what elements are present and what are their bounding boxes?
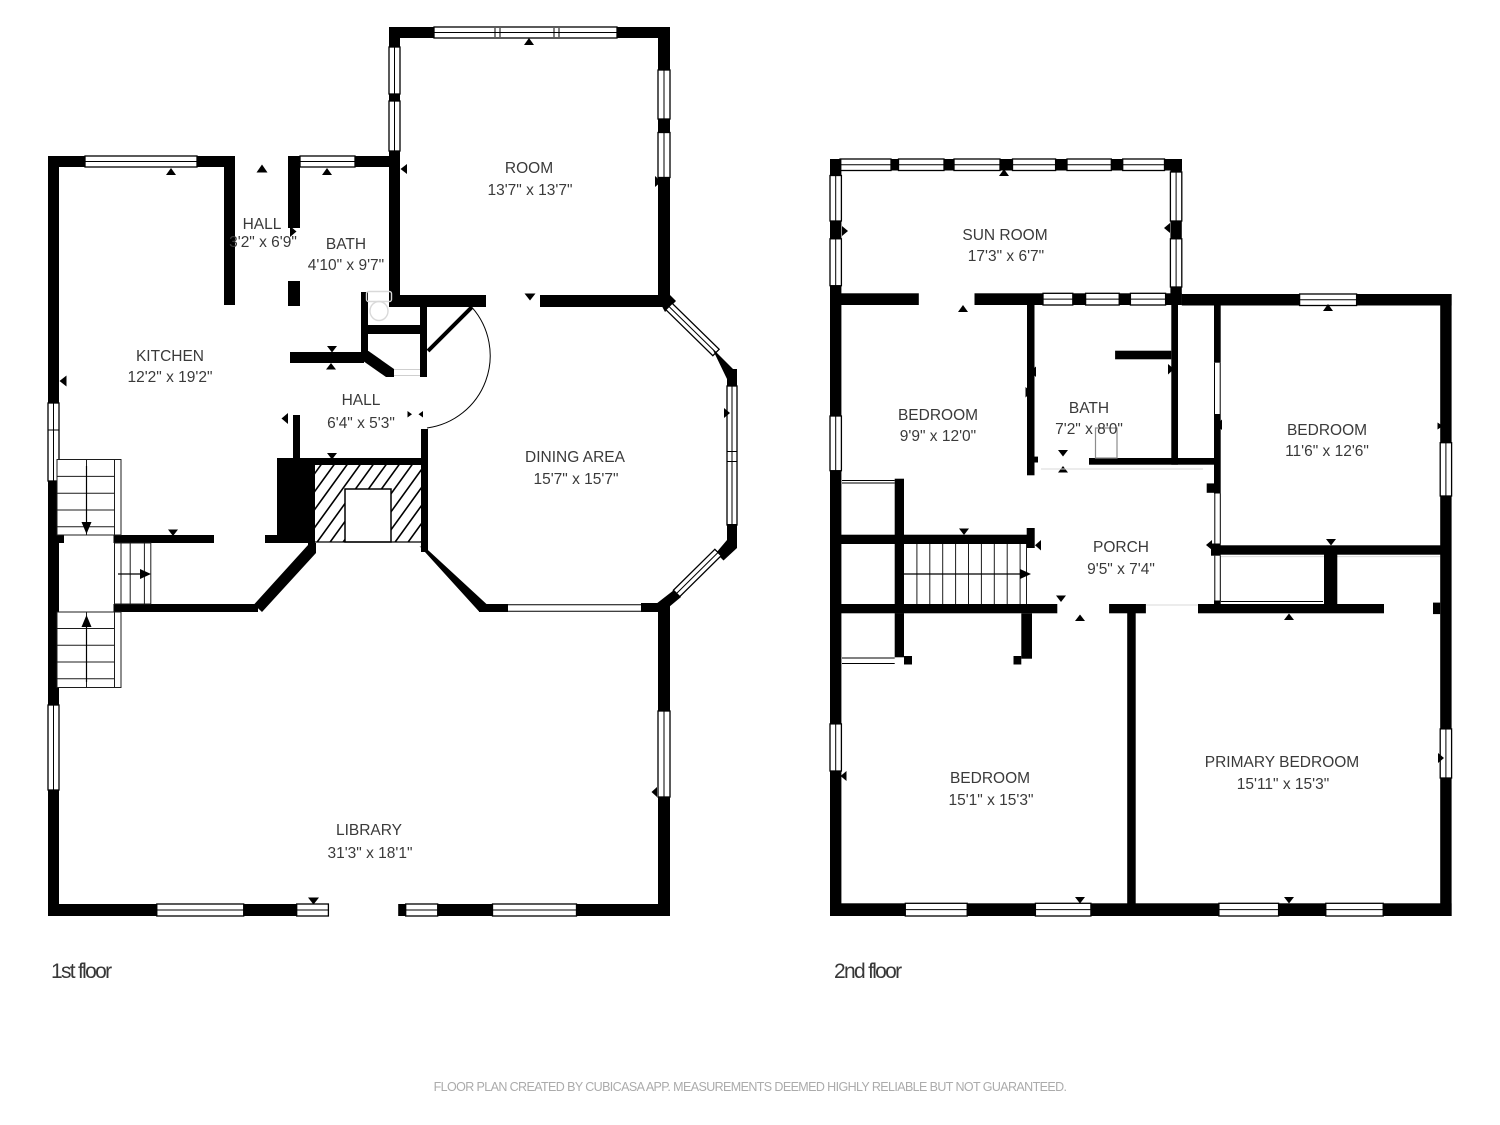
svg-text:13'7" x 13'7": 13'7" x 13'7" xyxy=(487,182,572,199)
svg-text:1st floor: 1st floor xyxy=(51,960,112,983)
svg-text:2nd floor: 2nd floor xyxy=(834,960,902,983)
svg-text:BATH: BATH xyxy=(326,236,366,253)
svg-text:BATH: BATH xyxy=(1069,400,1109,417)
svg-text:15'11" x 15'3": 15'11" x 15'3" xyxy=(1237,776,1329,793)
svg-text:9'9" x 12'0": 9'9" x 12'0" xyxy=(900,428,976,445)
svg-text:PRIMARY BEDROOM: PRIMARY BEDROOM xyxy=(1205,754,1359,771)
svg-text:11'6" x 12'6": 11'6" x 12'6" xyxy=(1285,443,1369,460)
svg-text:FLOOR PLAN CREATED BY CUBICASA: FLOOR PLAN CREATED BY CUBICASA APP. MEAS… xyxy=(434,1080,1067,1094)
svg-text:DINING AREA: DINING AREA xyxy=(525,449,626,466)
svg-text:HALL: HALL xyxy=(243,216,282,233)
svg-text:12'2" x 19'2": 12'2" x 19'2" xyxy=(127,369,212,386)
svg-text:4'10" x 9'7": 4'10" x 9'7" xyxy=(308,257,384,274)
svg-text:15'1" x 15'3": 15'1" x 15'3" xyxy=(948,792,1033,809)
svg-text:KITCHEN: KITCHEN xyxy=(136,348,204,365)
svg-text:17'3" x 6'7": 17'3" x 6'7" xyxy=(968,248,1044,265)
svg-text:3'2" x 6'9": 3'2" x 6'9" xyxy=(229,234,297,251)
svg-text:LIBRARY: LIBRARY xyxy=(336,822,402,839)
svg-text:BEDROOM: BEDROOM xyxy=(1287,422,1367,439)
svg-text:31'3" x 18'1": 31'3" x 18'1" xyxy=(327,845,412,862)
svg-text:9'5" x 7'4": 9'5" x 7'4" xyxy=(1087,561,1155,578)
svg-text:SUN ROOM: SUN ROOM xyxy=(962,227,1047,244)
svg-text:HALL: HALL xyxy=(342,392,381,409)
svg-text:ROOM: ROOM xyxy=(505,160,553,177)
svg-text:15'7" x 15'7": 15'7" x 15'7" xyxy=(533,471,618,488)
svg-text:BEDROOM: BEDROOM xyxy=(898,407,978,424)
svg-text:BEDROOM: BEDROOM xyxy=(950,770,1030,787)
svg-text:PORCH: PORCH xyxy=(1093,539,1149,556)
svg-text:7'2" x 8'0": 7'2" x 8'0" xyxy=(1055,421,1123,438)
svg-text:6'4" x 5'3": 6'4" x 5'3" xyxy=(327,415,395,432)
